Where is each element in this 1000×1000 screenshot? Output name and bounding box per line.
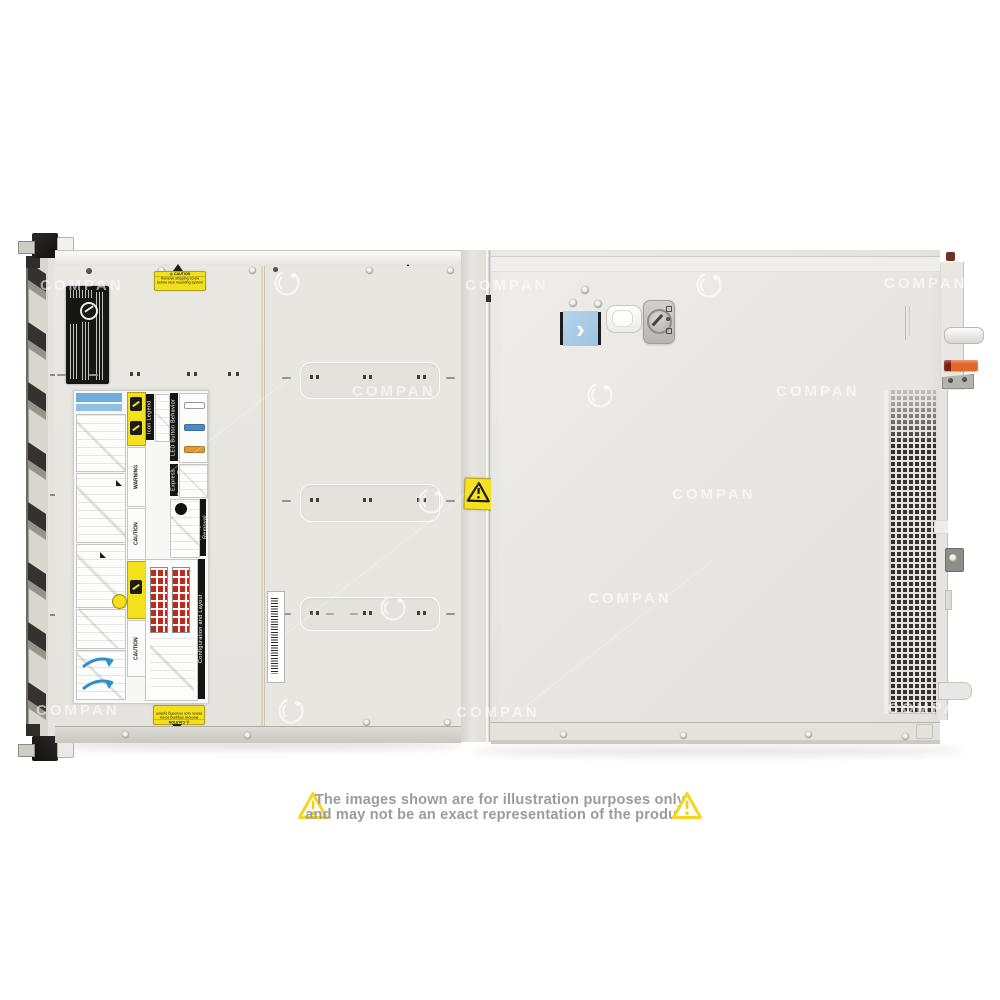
warning-strip-label: WARNING	[134, 465, 140, 489]
vent-slot	[89, 374, 98, 376]
caution-strip-label: CAUTION	[134, 523, 140, 546]
warning-strip: WARNING	[127, 447, 146, 507]
vent-slot	[363, 375, 366, 379]
screw-hole	[366, 267, 373, 274]
screw-hole	[560, 731, 567, 738]
lid-cutout-outline	[916, 724, 933, 739]
bracket-screw	[948, 378, 953, 383]
pinch-hazard-icon	[130, 397, 142, 411]
rear-handle	[944, 327, 984, 344]
vent-slot	[228, 372, 231, 376]
vent-slot	[423, 375, 426, 379]
shipping-screw-header: Shipping Screw Removal	[199, 499, 206, 556]
service-label-blue-header	[76, 404, 122, 411]
vent-slot	[363, 498, 366, 502]
service-label-blue-header	[76, 393, 122, 402]
screw-hole	[594, 300, 602, 308]
regulatory-label-text	[70, 290, 92, 298]
icon-legend-header: Icon Legend	[146, 394, 154, 440]
caution-sticker: ⚠ CAUTION Remove shipping screw before r…	[154, 271, 206, 291]
front-panel-edge	[26, 256, 58, 736]
caution-strip: CAUTION	[127, 620, 146, 677]
screw-hole	[249, 267, 256, 274]
vent-slot	[369, 611, 372, 615]
led-bar-orange	[184, 446, 205, 453]
vent-slot	[363, 611, 366, 615]
vent-slot	[187, 372, 190, 376]
vent-slot	[130, 372, 133, 376]
watermark-logo-icon	[416, 486, 446, 516]
latch-slot	[612, 310, 633, 327]
led-behavior-box	[179, 393, 208, 463]
etched-text	[909, 306, 910, 336]
vent-slot	[137, 372, 140, 376]
etched-text	[905, 306, 906, 340]
lock-closed-icon	[666, 306, 672, 312]
barcode-label	[267, 591, 285, 683]
screw-hole	[444, 719, 451, 726]
led-bar-blue	[184, 424, 205, 431]
vent-slot	[446, 377, 455, 379]
instruction-diagram	[76, 609, 126, 649]
rack-ear-tab	[18, 744, 35, 757]
riser-release-lever	[944, 360, 978, 371]
chassis-bottom-edge	[55, 726, 461, 743]
vent-slot	[310, 375, 313, 379]
lid-bottom-lip	[491, 740, 940, 744]
seam-gold-line	[261, 266, 263, 726]
screw-hole	[902, 733, 909, 740]
led-bar-white	[184, 402, 205, 409]
caution-sticker: ⚠ CAUTION Remove shipping screw before r…	[153, 705, 205, 725]
vent-slot	[57, 374, 66, 376]
rear-foot	[938, 682, 972, 700]
watermark-logo-icon	[272, 268, 302, 298]
cover-seam	[264, 266, 265, 726]
rear-corner-screw	[946, 252, 955, 261]
screw-hole	[86, 268, 92, 274]
lid-bottom-band	[491, 722, 940, 741]
screw-badge-icon	[175, 503, 187, 515]
time-badge-icon	[112, 594, 127, 609]
arrow-marker-icon	[116, 480, 122, 486]
edge-slot	[945, 590, 952, 610]
vent-slot	[326, 613, 334, 615]
disclaimer-text: The images shown are for illustration pu…	[160, 793, 840, 822]
regulatory-label-text	[82, 322, 91, 380]
rack-ear-tab	[18, 241, 35, 254]
vent-slot	[316, 611, 319, 615]
icon-legend-box	[155, 394, 170, 442]
bracket-mark	[598, 312, 601, 345]
chevron-right-icon: ›	[576, 314, 585, 344]
regulatory-label-text	[96, 292, 105, 380]
watermark-logo-icon	[694, 270, 724, 300]
bracket-screw	[962, 377, 967, 382]
caution-line: before rack mounting system	[157, 280, 203, 284]
service-tag-box	[179, 464, 208, 498]
edge-notch	[934, 520, 948, 534]
screw-hole	[244, 732, 251, 739]
configuration-title: Configuration and Layout	[198, 595, 205, 664]
top-cover-right-lid	[491, 250, 940, 744]
service-tag-header: Rear Express Service Tag	[170, 464, 178, 496]
vent-slot	[236, 372, 239, 376]
led-behavior-header: LED Button Behavior	[170, 393, 178, 461]
caution-sticker-text: ⚠ CAUTION Remove shipping screw before r…	[154, 711, 204, 724]
blue-chevron-sticker: ›	[563, 311, 598, 346]
lock-open-icon	[666, 328, 672, 334]
vent-slot	[446, 613, 455, 615]
watermark-logo-icon	[585, 380, 615, 410]
vent-slot	[310, 611, 313, 615]
watermark-logo-icon	[378, 593, 408, 623]
pinch-hazard-icon	[130, 580, 142, 594]
vent-slot	[417, 611, 420, 615]
hazard-triangle-icon	[465, 479, 493, 506]
vent-slot	[316, 498, 319, 502]
configuration-header: Configuration and Layout	[198, 559, 205, 699]
regulatory-label-text	[70, 324, 79, 379]
pinch-hazard-label	[127, 561, 146, 619]
pinch-hazard-label	[127, 392, 146, 446]
drive-bay-grid	[150, 567, 168, 633]
drive-bay-grid	[172, 567, 190, 633]
service-tag-title: Rear Express Service Tag	[170, 464, 178, 496]
arrow-marker-icon	[100, 552, 106, 558]
watermark-logo-icon	[276, 696, 306, 726]
shipping-screw-box	[170, 499, 200, 558]
caution-line: Remove shipping screw	[160, 715, 198, 719]
disclaimer-line-2: and may not be an exact representation o…	[305, 807, 694, 823]
vent-slot	[350, 613, 358, 615]
caution-strip: CAUTION	[127, 508, 146, 560]
screw-hole	[122, 731, 129, 738]
product-photo: WARNING CAUTION CAUTION Icon Legend LED …	[0, 0, 1000, 1000]
led-behavior-title: LED Button Behavior	[171, 398, 178, 455]
cover-indent	[300, 362, 440, 399]
caution-line: before rack mounting system	[156, 712, 202, 716]
rack-ear-latch	[57, 742, 74, 758]
vent-slot	[417, 375, 420, 379]
pinch-hazard-icon	[130, 421, 142, 435]
vent-slot	[369, 375, 372, 379]
screw-hole	[680, 732, 687, 739]
configuration-box	[145, 559, 198, 701]
caution-strip-label: CAUTION	[134, 637, 140, 660]
screw-hole	[805, 731, 812, 738]
vent-slot	[316, 375, 319, 379]
latch-screw	[949, 554, 957, 562]
screw-hole	[581, 286, 589, 294]
screw-hole	[363, 719, 370, 726]
vent-slot	[282, 377, 291, 379]
vent-slot	[423, 611, 426, 615]
lift-instruction-diagram	[76, 650, 126, 700]
vent-slot	[310, 498, 313, 502]
shipping-screw-title: Shipping Screw Removal	[199, 499, 206, 556]
chassis-shadow	[470, 746, 965, 756]
vent-edge-highlight	[884, 390, 888, 714]
warning-triangle-icon	[671, 790, 703, 821]
vent-fade	[889, 390, 936, 445]
vent-slot	[369, 498, 372, 502]
screw-hole	[447, 267, 454, 274]
vent-slot	[194, 372, 197, 376]
lock-indicator	[666, 317, 670, 321]
rail-diagram	[150, 636, 194, 694]
screw-pointer-icon	[173, 264, 183, 271]
screw-hole	[569, 299, 577, 307]
caution-sticker-text: ⚠ CAUTION Remove shipping screw before r…	[155, 272, 205, 285]
vent-slot	[282, 500, 291, 502]
instruction-diagram	[76, 414, 126, 472]
vent-slot	[446, 500, 455, 502]
icon-legend-title: Icon Legend	[147, 400, 154, 434]
